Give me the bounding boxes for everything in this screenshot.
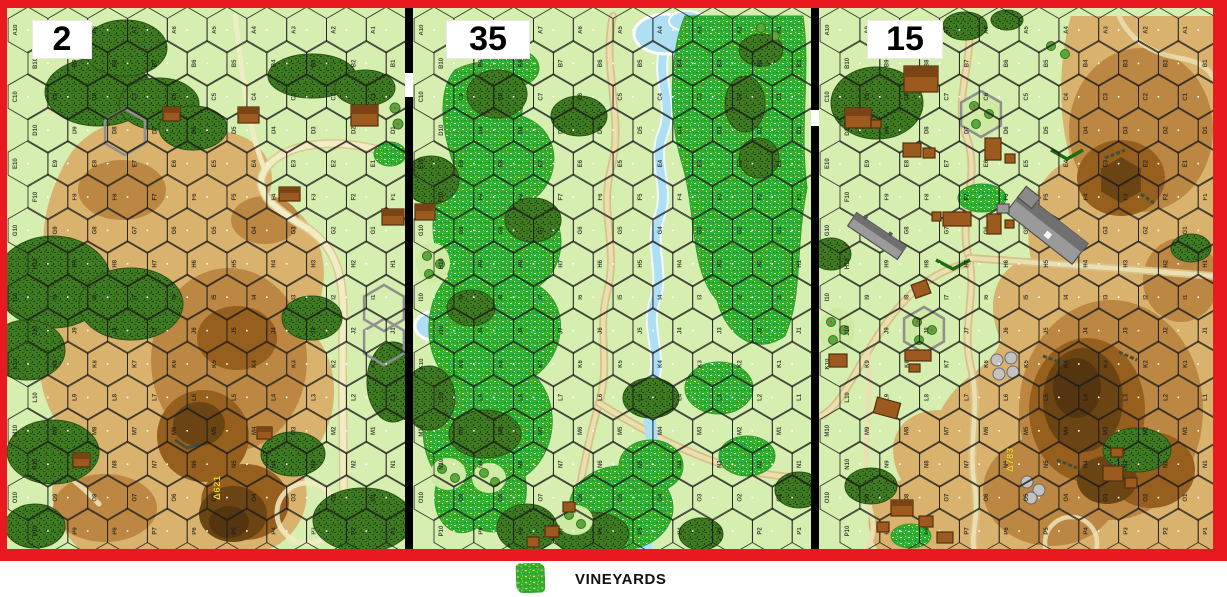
hex-label-B4: B4 — [272, 59, 278, 67]
hex-label-C3: C3 — [698, 92, 704, 100]
hex-label-F6: F6 — [1004, 193, 1010, 201]
hex-center-dot — [1058, 196, 1060, 198]
hex-label-J6: J6 — [1004, 327, 1010, 334]
hex-center-dot — [67, 296, 69, 298]
hex-center-dot — [839, 497, 841, 499]
hex-center-dot — [246, 263, 248, 265]
hex-center-dot — [592, 296, 594, 298]
hex-center-dot — [1038, 363, 1040, 365]
hex-label-G1: G1 — [777, 226, 783, 235]
hex-label-F7: F7 — [964, 193, 970, 201]
hex-label-O6: O6 — [578, 493, 584, 502]
hex-center-dot — [47, 530, 49, 532]
hex-center-dot — [632, 296, 634, 298]
hex-center-dot — [147, 363, 149, 365]
hex-label-O8: O8 — [499, 493, 505, 502]
hex-center-dot — [167, 263, 169, 265]
hex-label-M1: M1 — [777, 426, 783, 435]
hex-label-M8: M8 — [93, 426, 99, 435]
hex-center-dot — [453, 530, 455, 532]
hex-label-D6: D6 — [192, 126, 198, 134]
hex-label-P1: P1 — [1203, 527, 1209, 535]
hex-label-D9: D9 — [479, 126, 485, 134]
hex-center-dot — [1058, 463, 1060, 465]
hex-center-dot — [1138, 330, 1140, 332]
hex-center-dot — [979, 463, 981, 465]
hex-label-I7: I7 — [132, 294, 138, 300]
hex-center-dot — [433, 163, 435, 165]
hex-label-D3: D3 — [312, 126, 318, 134]
board-35-number-box: 35 — [447, 21, 529, 58]
hex-center-dot — [87, 129, 89, 131]
hex-label-A5: A5 — [1024, 26, 1030, 34]
hex-center-dot — [752, 163, 754, 165]
hex-center-dot — [366, 330, 368, 332]
hex-label-L5: L5 — [232, 393, 238, 401]
hex-label-I6: I6 — [172, 294, 178, 300]
hex-label-M8: M8 — [499, 426, 505, 435]
hex-center-dot — [67, 497, 69, 499]
hex-label-H1: H1 — [797, 259, 803, 267]
hex-label-F7: F7 — [558, 193, 564, 201]
hex-label-D1: D1 — [797, 126, 803, 134]
hex-label-B2: B2 — [1163, 59, 1169, 67]
hex-center-dot — [107, 29, 109, 31]
hex-label-H9: H9 — [73, 259, 79, 267]
hex-label-C3: C3 — [292, 92, 298, 100]
hex-center-dot — [326, 397, 328, 399]
hex-center-dot — [979, 63, 981, 65]
hex-label-I10: I10 — [825, 292, 831, 301]
hex-center-dot — [879, 96, 881, 98]
hex-label-K5: K5 — [212, 360, 218, 368]
hex-center-dot — [1178, 129, 1180, 131]
hex-center-dot — [859, 530, 861, 532]
hex-center-dot — [939, 263, 941, 265]
hex-center-dot — [839, 296, 841, 298]
hex-center-dot — [266, 497, 268, 499]
hex-center-dot — [453, 263, 455, 265]
hex-label-P2: P2 — [1163, 527, 1169, 535]
hex-center-dot — [732, 397, 734, 399]
hex-label-B7: B7 — [152, 59, 158, 67]
hex-label-D4: D4 — [1084, 126, 1090, 134]
hex-label-O3: O3 — [292, 493, 298, 502]
hex-center-dot — [453, 397, 455, 399]
hex-center-dot — [652, 63, 654, 65]
hex-label-D2: D2 — [757, 126, 763, 134]
hex-label-F5: F5 — [1044, 193, 1050, 201]
hex-label-D10: D10 — [33, 124, 39, 136]
hex-center-dot — [652, 330, 654, 332]
hex-label-K1: K1 — [1183, 360, 1189, 368]
hex-center-dot — [672, 163, 674, 165]
hex-label-E7: E7 — [944, 159, 950, 167]
hex-label-E2: E2 — [1143, 159, 1149, 167]
hex-label-L2: L2 — [757, 393, 763, 401]
hex-center-dot — [27, 163, 29, 165]
hex-center-dot — [47, 463, 49, 465]
hex-center-dot — [1138, 530, 1140, 532]
hex-center-dot — [147, 497, 149, 499]
hex-label-A4: A4 — [252, 26, 258, 34]
hex-center-dot — [385, 497, 387, 499]
hex-label-H10: H10 — [439, 258, 445, 270]
hex-label-A2: A2 — [1143, 26, 1149, 34]
hex-center-dot — [998, 363, 1000, 365]
hex-label-H3: H3 — [718, 259, 724, 267]
hex-label-N9: N9 — [885, 460, 891, 468]
hex-label-H7: H7 — [964, 259, 970, 267]
hex-center-dot — [1118, 296, 1120, 298]
hex-center-dot — [266, 230, 268, 232]
hex-center-dot — [1058, 129, 1060, 131]
hex-center-dot — [346, 163, 348, 165]
hex-label-B10: B10 — [845, 57, 851, 69]
hex-label-I9: I9 — [459, 294, 465, 300]
hex-center-dot — [752, 363, 754, 365]
board-separator-left-upper — [405, 8, 413, 73]
hex-label-O10: O10 — [825, 491, 831, 503]
hex-label-N3: N3 — [312, 460, 318, 468]
hex-center-dot — [1118, 497, 1120, 499]
hex-label-O7: O7 — [132, 493, 138, 502]
hex-label-K2: K2 — [331, 360, 337, 368]
hex-label-H9: H9 — [885, 259, 891, 267]
hex-label-M9: M9 — [459, 426, 465, 435]
board-separator-right-lower — [811, 126, 819, 549]
hex-label-L8: L8 — [113, 393, 119, 401]
hex-label-B3: B3 — [718, 59, 724, 67]
hex-label-E8: E8 — [905, 159, 911, 167]
hex-center-dot — [879, 430, 881, 432]
hex-label-I2: I2 — [331, 294, 337, 300]
hex-label-B6: B6 — [598, 59, 604, 67]
hex-center-dot — [672, 230, 674, 232]
hex-label-E8: E8 — [499, 159, 505, 167]
hex-center-dot — [266, 96, 268, 98]
hex-center-dot — [592, 430, 594, 432]
hex-label-F2: F2 — [1163, 193, 1169, 201]
hex-center-dot — [1197, 163, 1199, 165]
hex-center-dot — [147, 96, 149, 98]
hex-label-C4: C4 — [658, 92, 664, 100]
hex-label-P5: P5 — [1044, 527, 1050, 535]
hex-label-E9: E9 — [865, 159, 871, 167]
hex-label-N2: N2 — [351, 460, 357, 468]
hex-label-B1: B1 — [797, 59, 803, 67]
hex-label-K8: K8 — [93, 360, 99, 368]
hex-center-dot — [772, 63, 774, 65]
hex-center-dot — [1018, 330, 1020, 332]
hex-center-dot — [167, 530, 169, 532]
hex-label-E8: E8 — [93, 159, 99, 167]
hex-center-dot — [959, 163, 961, 165]
hex-center-dot — [107, 497, 109, 499]
hex-center-dot — [473, 296, 475, 298]
hex-label-H4: H4 — [1084, 259, 1090, 267]
hex-label-C4: C4 — [1064, 92, 1070, 100]
hex-center-dot — [772, 530, 774, 532]
hex-center-dot — [899, 129, 901, 131]
hex-center-dot — [226, 497, 228, 499]
hex-label-M7: M7 — [538, 426, 544, 435]
hex-label-M3: M3 — [292, 426, 298, 435]
hex-center-dot — [533, 263, 535, 265]
hex-label-N3: N3 — [1124, 460, 1130, 468]
hex-center-dot — [612, 397, 614, 399]
hex-label-D6: D6 — [1004, 126, 1010, 134]
hex-center-dot — [326, 263, 328, 265]
hex-center-dot — [959, 430, 961, 432]
hex-center-dot — [959, 296, 961, 298]
hex-center-dot — [186, 29, 188, 31]
hex-label-G2: G2 — [331, 226, 337, 235]
hex-label-K1: K1 — [371, 360, 377, 368]
hex-label-H10: H10 — [845, 258, 851, 270]
hex-label-L7: L7 — [152, 393, 158, 401]
hex-label-P3: P3 — [718, 527, 724, 535]
hex-center-dot — [632, 497, 634, 499]
hex-label-L9: L9 — [479, 393, 485, 401]
hex-center-dot — [879, 363, 881, 365]
hex-center-dot — [366, 196, 368, 198]
hex-label-N4: N4 — [1084, 460, 1090, 468]
hex-center-dot — [147, 296, 149, 298]
hex-label-J9: J9 — [73, 327, 79, 334]
hex-center-dot — [612, 330, 614, 332]
hex-label-J4: J4 — [272, 327, 278, 334]
hex-label-N9: N9 — [479, 460, 485, 468]
hex-label-P8: P8 — [925, 527, 931, 535]
hex-center-dot — [1158, 96, 1160, 98]
hex-label-O9: O9 — [53, 493, 59, 502]
vineyards-legend-swatch — [515, 563, 545, 594]
hex-center-dot — [433, 497, 435, 499]
hex-label-D7: D7 — [964, 126, 970, 134]
hex-center-dot — [573, 63, 575, 65]
hex-label-P6: P6 — [598, 527, 604, 535]
hex-label-M3: M3 — [698, 426, 704, 435]
hex-center-dot — [998, 497, 1000, 499]
board-15[interactable]: A10A9A8A7A6A5A4A3A2A1B10B9B8B7B6B5B4B3B2… — [819, 8, 1213, 549]
hex-center-dot — [592, 497, 594, 499]
hex-center-dot — [1178, 263, 1180, 265]
hex-label-J1: J1 — [391, 327, 397, 334]
hex-center-dot — [1078, 163, 1080, 165]
hex-label-G7: G7 — [132, 226, 138, 235]
hex-center-dot — [246, 196, 248, 198]
hex-label-H8: H8 — [925, 259, 931, 267]
hex-center-dot — [791, 230, 793, 232]
frame-top — [0, 0, 1227, 8]
hex-center-dot — [226, 363, 228, 365]
hex-center-dot — [919, 163, 921, 165]
hex-center-dot — [712, 430, 714, 432]
hex-label-O8: O8 — [93, 493, 99, 502]
hex-label-F10: F10 — [845, 191, 851, 202]
board-35[interactable]: A10A9A8A7A6A5A4A3A2A1B10B9B8B7B6B5B4B3B2… — [413, 8, 811, 549]
hex-label-L3: L3 — [718, 393, 724, 401]
hex-label-O10: O10 — [13, 491, 19, 503]
hex-center-dot — [919, 497, 921, 499]
hex-center-dot — [1118, 96, 1120, 98]
hex-label-K9: K9 — [865, 360, 871, 368]
hex-center-dot — [286, 397, 288, 399]
hex-label-A1: A1 — [1183, 26, 1189, 34]
hex-label-D4: D4 — [272, 126, 278, 134]
hex-center-dot — [533, 63, 535, 65]
hex-center-dot — [67, 163, 69, 165]
hex-center-dot — [959, 230, 961, 232]
hex-center-dot — [899, 530, 901, 532]
hex-center-dot — [513, 230, 515, 232]
hex-center-dot — [246, 129, 248, 131]
hex-center-dot — [433, 29, 435, 31]
hex-label-L8: L8 — [519, 393, 525, 401]
hex-center-dot — [899, 463, 901, 465]
hex-label-H6: H6 — [192, 259, 198, 267]
hex-center-dot — [919, 96, 921, 98]
hex-label-C2: C2 — [737, 92, 743, 100]
hex-center-dot — [147, 230, 149, 232]
hex-label-B5: B5 — [232, 59, 238, 67]
board-2[interactable]: A10A9A8A7A6A5A4A3A2A1B10B9B8B7B6B5B4B3B2… — [7, 8, 405, 549]
hex-center-dot — [346, 230, 348, 232]
hex-label-I3: I3 — [292, 294, 298, 300]
hex-label-N1: N1 — [1203, 460, 1209, 468]
hex-center-dot — [1018, 263, 1020, 265]
hex-label-J9: J9 — [479, 327, 485, 334]
hex-center-dot — [672, 430, 674, 432]
hex-center-dot — [1178, 397, 1180, 399]
hex-label-P3: P3 — [312, 527, 318, 535]
hex-center-dot — [366, 129, 368, 131]
hex-center-dot — [226, 96, 228, 98]
hex-center-dot — [879, 296, 881, 298]
hex-center-dot — [712, 29, 714, 31]
hex-label-C7: C7 — [538, 92, 544, 100]
hex-label-F9: F9 — [885, 193, 891, 201]
hex-label-I3: I3 — [1104, 294, 1110, 300]
hex-center-dot — [306, 497, 308, 499]
hex-label-P8: P8 — [519, 527, 525, 535]
hex-center-dot — [939, 129, 941, 131]
hex-label-K2: K2 — [737, 360, 743, 368]
hex-center-dot — [1178, 63, 1180, 65]
hex-label-J3: J3 — [718, 327, 724, 334]
hex-center-dot — [473, 230, 475, 232]
hex-center-dot — [47, 263, 49, 265]
hex-center-dot — [692, 330, 694, 332]
hex-label-M9: M9 — [53, 426, 59, 435]
hex-center-dot — [899, 330, 901, 332]
hex-label-I10: I10 — [13, 292, 19, 301]
hex-center-dot — [127, 463, 129, 465]
frame-right — [1213, 0, 1227, 561]
hex-center-dot — [1038, 96, 1040, 98]
hex-label-I7: I7 — [944, 294, 950, 300]
frame-bottom — [0, 549, 1227, 561]
hex-label-C6: C6 — [984, 92, 990, 100]
hex-label-E7: E7 — [132, 159, 138, 167]
hex-label-G6: G6 — [578, 226, 584, 235]
hex-label-P10: P10 — [845, 525, 851, 536]
hex-center-dot — [1058, 263, 1060, 265]
hex-label-G3: G3 — [698, 226, 704, 235]
hex-label-K6: K6 — [172, 360, 178, 368]
hex-center-dot — [1098, 263, 1100, 265]
hex-center-dot — [632, 96, 634, 98]
hex-label-H7: H7 — [152, 259, 158, 267]
hex-center-dot — [1158, 430, 1160, 432]
hex-center-dot — [266, 29, 268, 31]
hex-center-dot — [167, 196, 169, 198]
hex-label-N10: N10 — [439, 458, 445, 470]
hex-label-O5: O5 — [618, 493, 624, 502]
hex-label-D7: D7 — [558, 126, 564, 134]
hex-label-A2: A2 — [331, 26, 337, 34]
hex-label-I5: I5 — [1024, 294, 1030, 300]
hex-label-B9: B9 — [73, 59, 79, 67]
hex-label-H1: H1 — [391, 259, 397, 267]
hex-label-F8: F8 — [925, 193, 931, 201]
hex-label-P9: P9 — [73, 527, 79, 535]
hex-label-E10: E10 — [13, 158, 19, 169]
hex-label-G10: G10 — [419, 224, 425, 236]
hex-label-C8: C8 — [93, 92, 99, 100]
hex-center-dot — [286, 330, 288, 332]
hex-label-J7: J7 — [152, 327, 158, 334]
hex-label-N5: N5 — [1044, 460, 1050, 468]
hex-center-dot — [573, 263, 575, 265]
hex-center-dot — [107, 163, 109, 165]
hex-center-dot — [1018, 397, 1020, 399]
hex-label-G8: G8 — [93, 226, 99, 235]
hex-center-dot — [513, 296, 515, 298]
board-2-number: 2 — [53, 20, 72, 58]
hex-label-B4: B4 — [678, 59, 684, 67]
hex-center-dot — [791, 363, 793, 365]
hex-center-dot — [652, 196, 654, 198]
hex-center-dot — [306, 363, 308, 365]
hex-label-O1: O1 — [777, 493, 783, 502]
hex-center-dot — [573, 397, 575, 399]
hex-center-dot — [998, 163, 1000, 165]
hex-center-dot — [752, 497, 754, 499]
hex-center-dot — [433, 96, 435, 98]
hex-label-A2: A2 — [737, 26, 743, 34]
hex-center-dot — [859, 463, 861, 465]
hex-label-A10: A10 — [825, 24, 831, 36]
hex-label-E9: E9 — [53, 159, 59, 167]
hex-center-dot — [453, 63, 455, 65]
hex-label-O9: O9 — [459, 493, 465, 502]
hex-center-dot — [385, 363, 387, 365]
hex-label-L6: L6 — [598, 393, 604, 401]
hex-center-dot — [959, 29, 961, 31]
hex-label-C9: C9 — [53, 92, 59, 100]
hex-center-dot — [286, 63, 288, 65]
hex-label-J4: J4 — [678, 327, 684, 334]
frame-left — [0, 0, 7, 561]
hex-label-J3: J3 — [312, 327, 318, 334]
hex-label-B7: B7 — [964, 59, 970, 67]
hex-center-dot — [632, 230, 634, 232]
hex-label-K1: K1 — [777, 360, 783, 368]
hex-label-C10: C10 — [419, 91, 425, 103]
hex-center-dot — [1178, 530, 1180, 532]
